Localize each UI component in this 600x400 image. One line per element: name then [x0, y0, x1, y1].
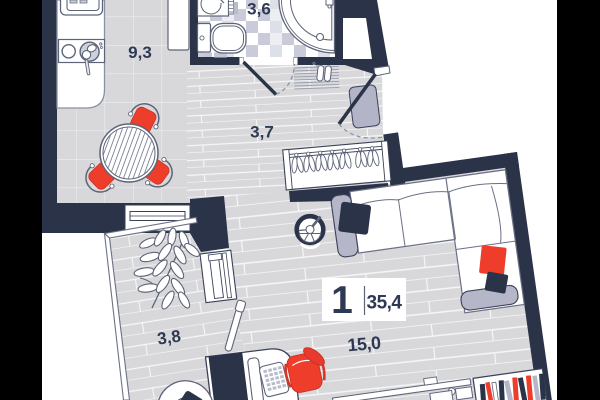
svg-text:35,4: 35,4 [367, 293, 403, 314]
svg-text:9,3: 9,3 [128, 43, 152, 62]
svg-text:3,6: 3,6 [247, 0, 271, 19]
svg-text:3,8: 3,8 [156, 326, 182, 348]
svg-text:15,0: 15,0 [347, 333, 382, 356]
svg-text:3,7: 3,7 [250, 123, 274, 142]
svg-text:1: 1 [331, 279, 353, 322]
